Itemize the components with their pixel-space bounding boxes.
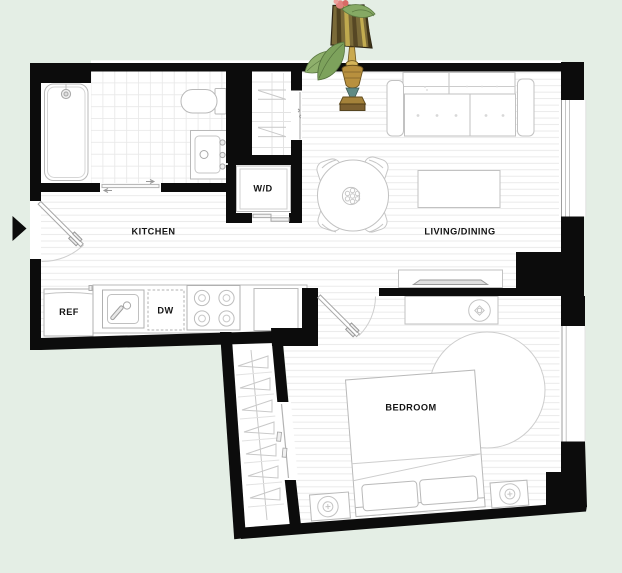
svg-text:DW: DW	[157, 306, 173, 316]
svg-text:KITCHEN: KITCHEN	[132, 226, 176, 236]
svg-text:W/D: W/D	[253, 184, 272, 194]
svg-text:LIVING/DINING: LIVING/DINING	[424, 226, 495, 236]
svg-text:REF: REF	[59, 307, 79, 317]
svg-text:BEDROOM: BEDROOM	[385, 402, 436, 412]
